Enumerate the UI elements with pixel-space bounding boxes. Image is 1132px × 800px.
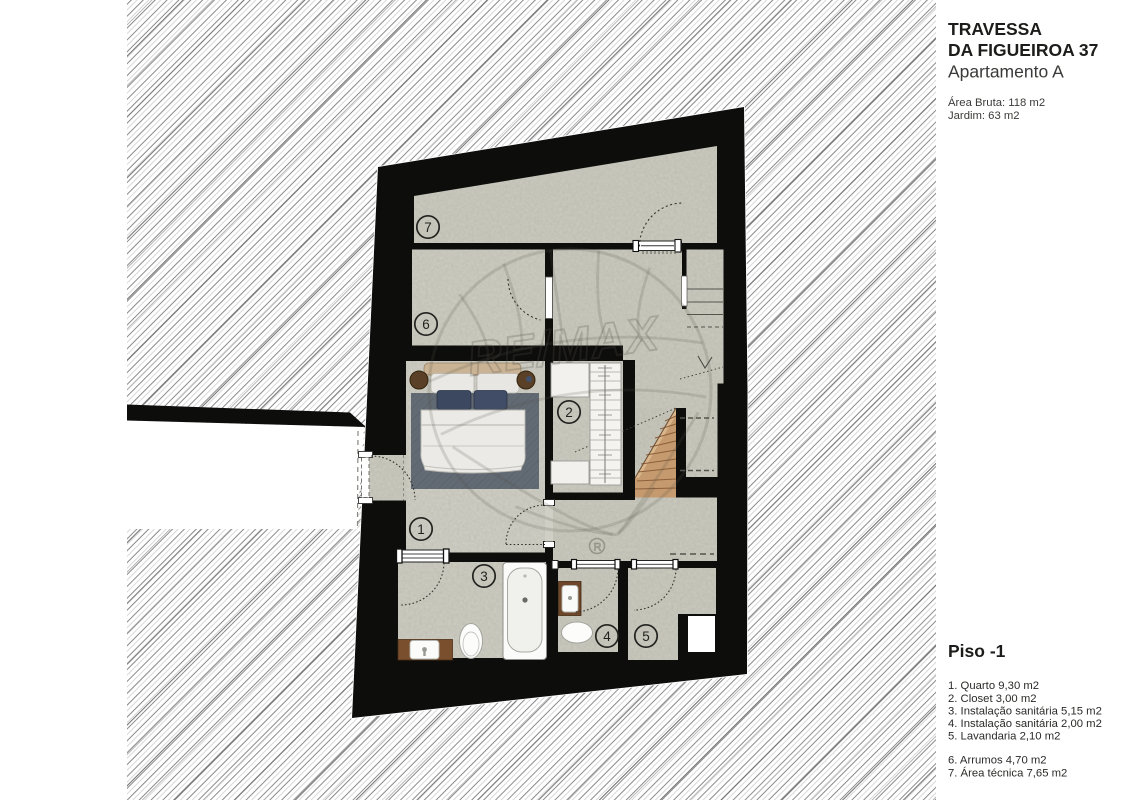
svg-text:DA FIGUEIROA 37: DA FIGUEIROA 37 <box>948 40 1098 60</box>
svg-text:2: 2 <box>565 405 573 420</box>
svg-text:7: 7 <box>424 220 432 235</box>
svg-text:4. Instalação sanitária 2,00 m: 4. Instalação sanitária 2,00 m2 <box>948 718 1102 730</box>
svg-text:3. Instalação sanitária 5,15 m: 3. Instalação sanitária 5,15 m2 <box>948 706 1102 718</box>
svg-text:Jardim: 63 m2: Jardim: 63 m2 <box>948 110 1020 122</box>
svg-text:2. Closet 3,00 m2: 2. Closet 3,00 m2 <box>948 693 1037 705</box>
svg-text:1: 1 <box>417 522 425 537</box>
svg-text:R: R <box>594 542 602 554</box>
svg-text:Apartamento A: Apartamento A <box>948 62 1064 82</box>
svg-text:Área Bruta: 118 m2: Área Bruta: 118 m2 <box>948 96 1045 109</box>
svg-text:5: 5 <box>642 629 650 644</box>
svg-text:5. Lavandaria 2,10 m2: 5. Lavandaria 2,10 m2 <box>948 731 1060 743</box>
svg-text:TRAVESSA: TRAVESSA <box>948 19 1042 39</box>
svg-text:Piso -1: Piso -1 <box>948 641 1006 661</box>
svg-text:4: 4 <box>603 629 611 644</box>
svg-text:6. Arrumos 4,70 m2: 6. Arrumos 4,70 m2 <box>948 755 1047 767</box>
svg-text:3: 3 <box>480 569 488 584</box>
svg-text:7. Área técnica 7,65 m2: 7. Área técnica 7,65 m2 <box>948 767 1067 780</box>
svg-text:6: 6 <box>422 317 430 332</box>
svg-text:1. Quarto 9,30 m2: 1. Quarto 9,30 m2 <box>948 680 1039 692</box>
